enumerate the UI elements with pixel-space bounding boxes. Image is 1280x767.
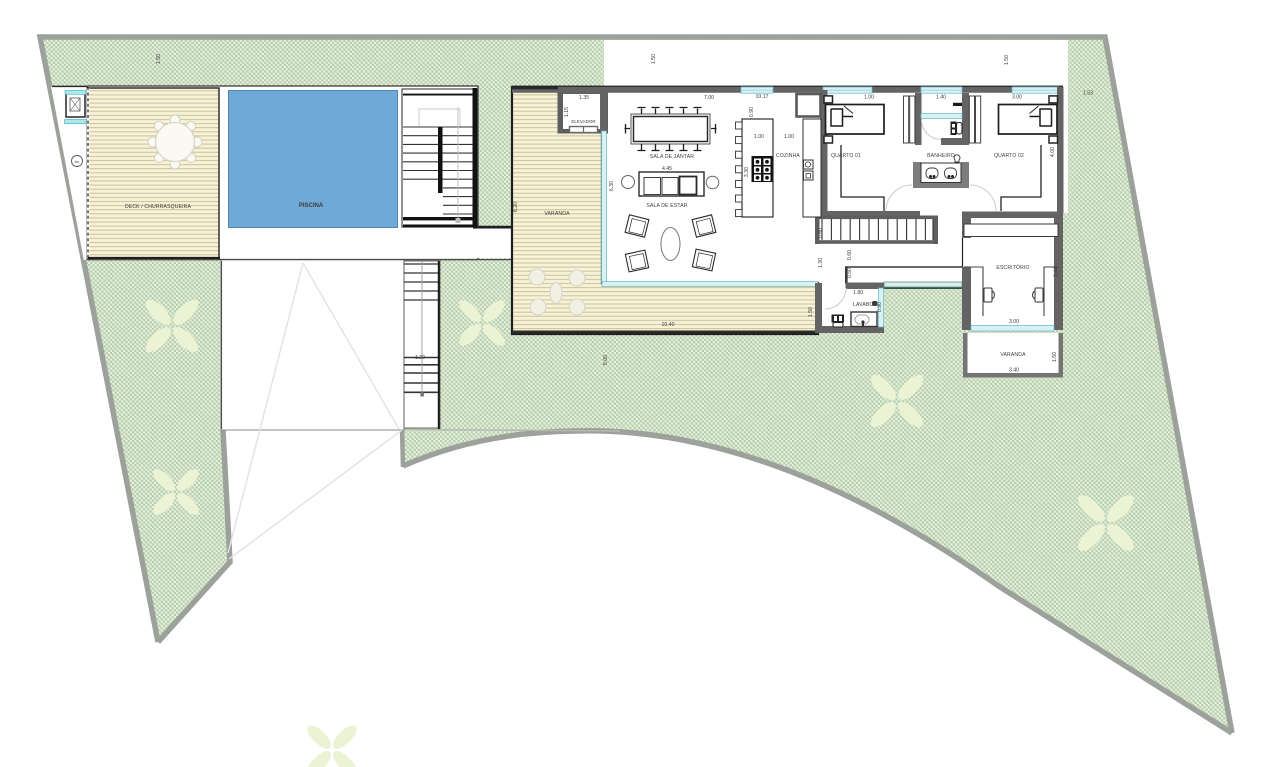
svg-text:1.20: 1.20 <box>415 355 425 361</box>
svg-text:0.50: 0.50 <box>847 268 853 278</box>
svg-text:PISCINA: PISCINA <box>299 203 324 209</box>
svg-text:QUARTO 02: QUARTO 02 <box>994 153 1024 159</box>
svg-text:1.00: 1.00 <box>784 134 794 140</box>
svg-text:VARANDA: VARANDA <box>1000 352 1026 358</box>
svg-text:3.44: 3.44 <box>1054 267 1060 277</box>
svg-text:4.00: 4.00 <box>1050 147 1056 157</box>
svg-text:SALA DE ESTAR: SALA DE ESTAR <box>646 203 687 209</box>
svg-text:1.30: 1.30 <box>818 258 824 268</box>
svg-text:BANHEIRO: BANHEIRO <box>927 153 955 159</box>
svg-text:3.00: 3.00 <box>1012 95 1022 101</box>
svg-text:0.60: 0.60 <box>818 228 824 238</box>
svg-text:COZINHA: COZINHA <box>776 153 800 159</box>
svg-text:1.80: 1.80 <box>853 290 863 296</box>
svg-text:1.00: 1.00 <box>864 95 874 101</box>
svg-text:10.17: 10.17 <box>756 94 769 100</box>
svg-text:5.00: 5.00 <box>603 355 609 365</box>
svg-text:SALA DE JANTAR: SALA DE JANTAR <box>650 154 694 160</box>
svg-text:0.90: 0.90 <box>877 302 883 312</box>
svg-text:1.15: 1.15 <box>564 107 570 117</box>
svg-text:1.50: 1.50 <box>1052 352 1058 362</box>
svg-text:3.30: 3.30 <box>744 167 750 177</box>
svg-text:1.50: 1.50 <box>651 54 657 64</box>
svg-text:1.50: 1.50 <box>1004 55 1010 65</box>
svg-text:1.50: 1.50 <box>808 307 814 317</box>
svg-text:1.50: 1.50 <box>156 54 162 64</box>
svg-text:ELEVADOR: ELEVADOR <box>571 119 596 124</box>
svg-text:10.40: 10.40 <box>662 322 675 328</box>
svg-text:bc: bc <box>75 159 79 164</box>
svg-text:LAVABO: LAVABO <box>853 302 874 308</box>
svg-text:DECK / CHURRASQUEIRA: DECK / CHURRASQUEIRA <box>125 204 192 210</box>
svg-text:0.60: 0.60 <box>847 250 853 260</box>
svg-text:8.20: 8.20 <box>513 202 519 212</box>
svg-text:1.40: 1.40 <box>936 94 946 100</box>
svg-text:0.90: 0.90 <box>749 107 755 117</box>
svg-text:7.00: 7.00 <box>704 95 714 101</box>
svg-text:1.35: 1.35 <box>579 95 589 101</box>
svg-text:QUARTO 01: QUARTO 01 <box>831 153 861 159</box>
svg-text:3.40: 3.40 <box>1009 368 1019 374</box>
svg-text:1.00: 1.00 <box>754 134 764 140</box>
svg-text:6.30: 6.30 <box>609 181 615 191</box>
svg-text:1.53: 1.53 <box>1083 91 1093 97</box>
svg-text:ESCRITÓRIO: ESCRITÓRIO <box>996 264 1029 271</box>
svg-text:VARANDA: VARANDA <box>544 211 570 217</box>
svg-text:4.45: 4.45 <box>662 166 672 172</box>
svg-text:3.00: 3.00 <box>1009 319 1019 325</box>
